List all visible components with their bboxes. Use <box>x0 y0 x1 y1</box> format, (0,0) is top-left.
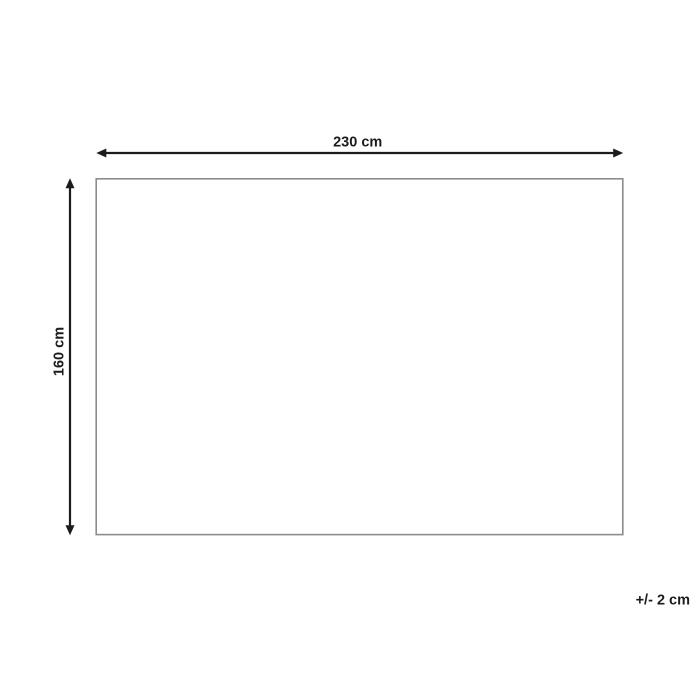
svg-text:+/- 2 cm: +/- 2 cm <box>636 592 690 608</box>
svg-text:160 cm: 160 cm <box>51 327 67 376</box>
svg-text:230 cm: 230 cm <box>333 134 382 150</box>
